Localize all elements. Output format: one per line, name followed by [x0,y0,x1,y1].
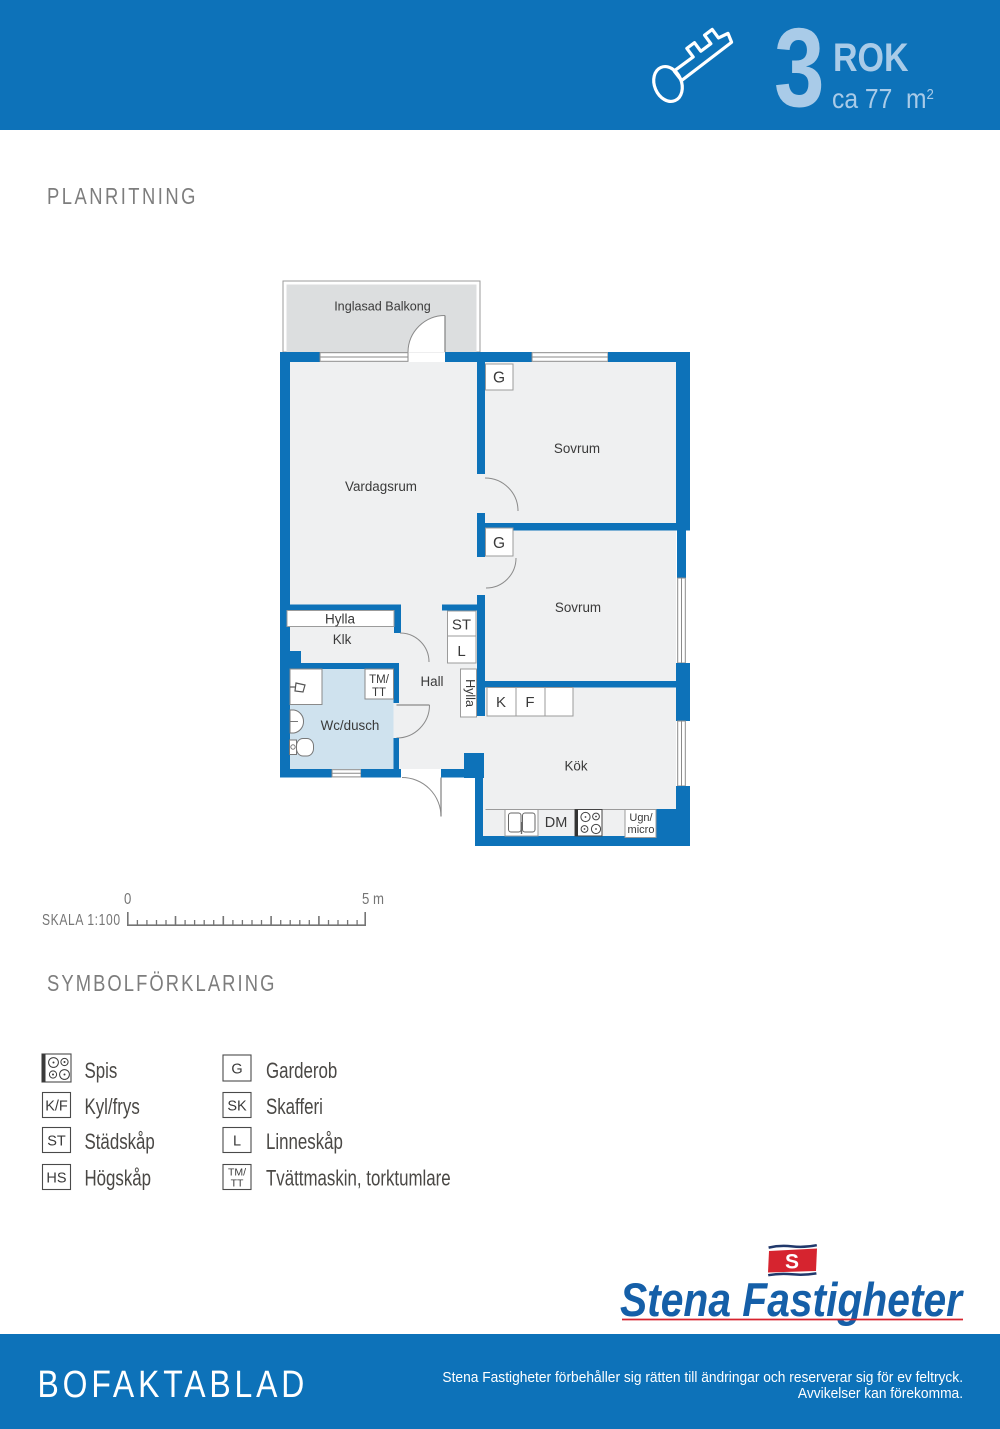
svg-text:Stena Fastigheter: Stena Fastigheter [620,1273,964,1326]
svg-text:Kyl/frys: Kyl/frys [85,1095,140,1120]
svg-text:Hylla: Hylla [325,612,355,627]
svg-text:Garderob: Garderob [266,1059,337,1084]
svg-text:ST: ST [47,1134,66,1150]
svg-text:G: G [493,370,505,387]
svg-text:SK: SK [227,1099,247,1115]
svg-text:Inglasad Balkong: Inglasad Balkong [334,300,431,314]
svg-text:ST: ST [452,617,471,634]
svg-text:Hall: Hall [420,674,443,689]
svg-text:micro: micro [628,824,655,836]
svg-text:K: K [496,694,506,711]
svg-text:TT: TT [372,687,386,699]
svg-text:Hylla: Hylla [463,679,477,707]
svg-text:Kök: Kök [564,759,587,774]
svg-text:L: L [457,643,465,660]
svg-text:Skafferi: Skafferi [266,1095,323,1120]
svg-text:SKALA 1:100: SKALA 1:100 [42,911,121,929]
svg-text:K/F: K/F [45,1099,68,1115]
svg-text:Klk: Klk [333,632,352,647]
svg-text:PLANRITNING: PLANRITNING [47,184,198,209]
svg-text:TM/: TM/ [369,674,390,686]
svg-text:L: L [233,1134,241,1150]
svg-text:HS: HS [46,1171,66,1187]
svg-text:Linneskåp: Linneskåp [266,1130,343,1155]
svg-text:Sovrum: Sovrum [554,441,600,456]
svg-text:G: G [231,1062,242,1078]
svg-text:Wc/dusch: Wc/dusch [321,718,380,733]
svg-text:DM: DM [545,815,568,831]
svg-text:Tvättmaskin, torktumlare: Tvättmaskin, torktumlare [266,1166,451,1191]
svg-text:Högskåp: Högskåp [85,1166,152,1191]
svg-text:S: S [785,1251,799,1274]
svg-text:SYMBOLFÖRKLARING: SYMBOLFÖRKLARING [47,971,276,996]
svg-text:F: F [525,694,534,711]
svg-text:5 m: 5 m [362,891,384,908]
svg-text:Vardagsrum: Vardagsrum [345,479,417,494]
svg-text:TT: TT [231,1178,244,1190]
svg-text:Spis: Spis [85,1059,118,1084]
svg-text:BOFAKTABLAD: BOFAKTABLAD [38,1363,309,1405]
svg-text:0: 0 [124,891,131,908]
svg-text:G: G [493,535,505,552]
svg-text:Städskåp: Städskåp [85,1130,155,1155]
svg-text:Ugn/: Ugn/ [629,812,653,824]
svg-text:Sovrum: Sovrum [555,600,601,615]
